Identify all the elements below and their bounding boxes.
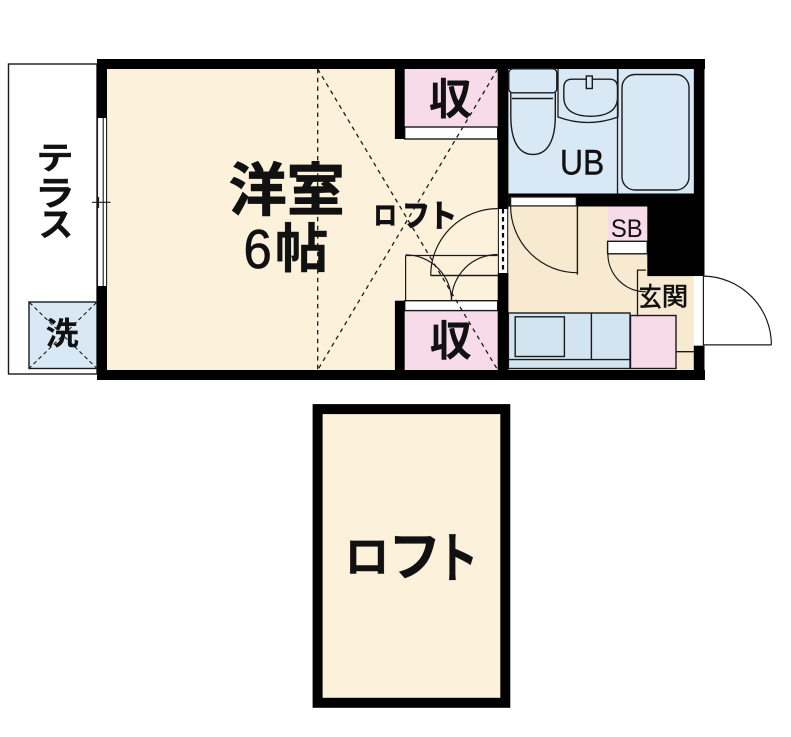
svg-text:UB: UB <box>560 144 604 183</box>
svg-text:SB: SB <box>611 215 643 243</box>
svg-text:6: 6 <box>243 219 271 280</box>
